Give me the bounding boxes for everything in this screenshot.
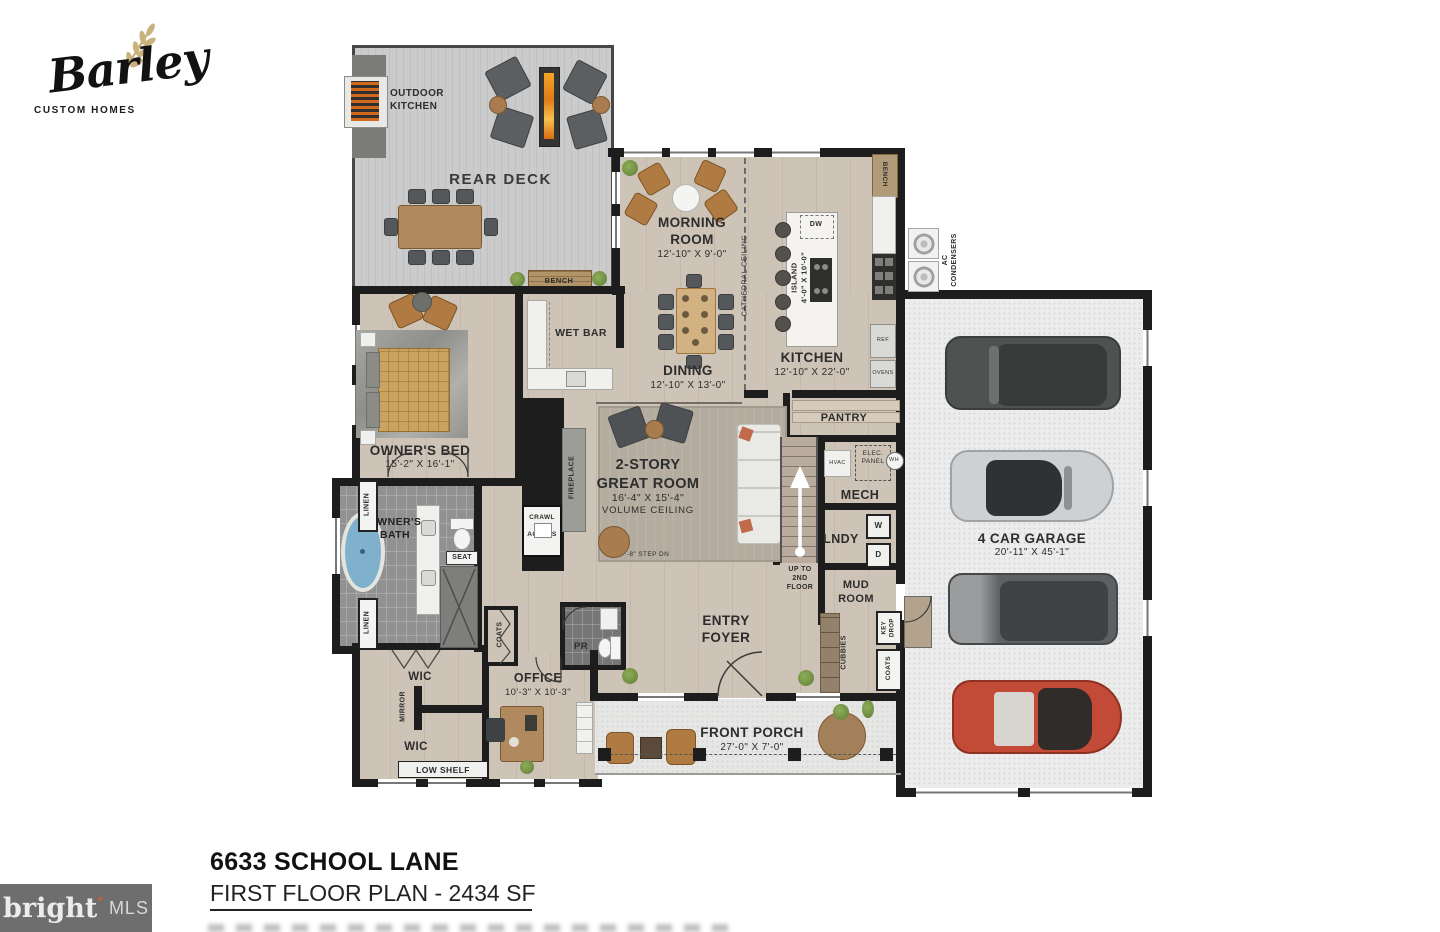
entry-foyer-label: ENTRY FOYER <box>676 612 776 647</box>
office-label: OFFICE <box>492 670 584 686</box>
rear-deck-label: REAR DECK <box>428 170 573 189</box>
window <box>612 216 620 248</box>
deck-dining-chair <box>484 218 498 236</box>
up-to-2nd-label: UP TO 2ND FLOOR <box>776 566 824 593</box>
porch-post <box>598 748 611 761</box>
bedroom-round-table <box>412 292 432 312</box>
bright-mls-watermark: bright ✶ MLS <box>0 884 152 932</box>
wall <box>352 779 490 787</box>
office-coats-label: COATS <box>497 614 506 654</box>
dining-chair <box>718 314 734 330</box>
dining-chair <box>658 294 674 310</box>
stairs <box>780 437 818 563</box>
island-stool <box>775 222 791 238</box>
floor-plan-canvas: Barley CUSTOM HOMES OUTDOOR KITCHEN REAR… <box>0 0 1440 932</box>
dining-chair <box>658 334 674 350</box>
pr-sink <box>600 608 618 630</box>
wall <box>896 290 905 797</box>
deck-dining-chair <box>432 250 450 265</box>
window <box>1143 470 1152 506</box>
morning-room-label: MORNING ROOM <box>642 214 742 249</box>
window <box>716 148 754 157</box>
bed <box>378 348 450 432</box>
barley-logo: Barley CUSTOM HOMES <box>30 12 230 127</box>
owners-bed-label: OWNER'S BED <box>350 442 490 459</box>
mud-room-label: MUD ROOM <box>816 578 896 606</box>
car-suv-dark <box>945 336 1121 410</box>
stone-pad-bottom <box>352 124 386 158</box>
nightstand <box>360 332 376 347</box>
plant <box>833 704 849 720</box>
porch-table <box>640 737 662 759</box>
island-stool <box>775 294 791 310</box>
kitchen-label: KITCHEN <box>757 349 867 366</box>
window <box>500 779 534 787</box>
hvac-label: HVAC <box>824 460 851 467</box>
morning-table <box>672 184 700 212</box>
kitchen-counter <box>872 196 896 254</box>
linen-label: LINEN <box>364 482 373 526</box>
cropped-text-strip <box>208 924 738 932</box>
washer-label: W <box>866 521 891 531</box>
window <box>1143 600 1152 636</box>
great-room-dims: 16'-4" X 15'-4" <box>578 492 718 505</box>
logo-brand: Barley <box>45 30 211 103</box>
wet-bar-label: WET BAR <box>545 327 617 340</box>
wet-bar-sink <box>566 371 586 387</box>
watermark-suffix: MLS <box>109 898 149 919</box>
wall <box>744 390 768 398</box>
wall <box>352 286 625 294</box>
great-room-side-table <box>645 420 664 439</box>
watermark-brand: bright <box>3 895 97 922</box>
wic1-label: WIC <box>380 670 460 685</box>
wall <box>352 645 360 787</box>
footer-underline <box>210 909 532 911</box>
wall <box>792 390 903 398</box>
garage-dims: 20'-11" X 45'-1" <box>962 547 1102 560</box>
office-dims: 10'-3" X 10'-3" <box>492 687 584 699</box>
deck-bench-label: BENCH <box>528 276 590 286</box>
window <box>545 779 579 787</box>
plant <box>622 160 638 176</box>
dryer-label: D <box>866 550 891 560</box>
deck-dining-chair <box>456 250 474 265</box>
garage-door <box>916 788 1018 797</box>
window <box>638 693 684 701</box>
window <box>428 779 466 787</box>
wic2-label: WIC <box>376 740 456 755</box>
dw-label: DW <box>800 221 832 230</box>
kitchen-dims: 12'-10" X 22'-0" <box>757 367 867 380</box>
office-bookcase <box>576 702 593 754</box>
ac-condenser <box>908 261 939 292</box>
porch-post <box>880 748 893 761</box>
toilet-bowl <box>453 528 471 550</box>
great-room-label: 2-STORY GREAT ROOM <box>578 456 718 493</box>
ac-condenser <box>908 228 939 259</box>
garage-stoop <box>904 596 932 648</box>
bed-pillows <box>366 352 380 388</box>
pr-toilet-tank <box>610 636 621 660</box>
dining-label: DINING <box>638 362 738 379</box>
pantry-shelf <box>792 400 900 411</box>
wall <box>818 503 903 510</box>
seat-label: SEAT <box>446 554 478 563</box>
deck-side-table <box>592 96 610 114</box>
footer-plan-title: FIRST FLOOR PLAN - 2434 SF <box>210 880 536 907</box>
island-stool <box>775 270 791 286</box>
cubbies-label: CUBBIES <box>841 624 850 680</box>
grill <box>344 76 388 128</box>
volume-ceiling-label: VOLUME CEILING <box>578 505 718 517</box>
low-shelf-label: LOW SHELF <box>398 765 488 776</box>
ovens-label: OVENS <box>870 370 896 377</box>
wall <box>616 290 624 348</box>
car-suv-gray <box>948 573 1118 645</box>
dining-chair <box>686 274 702 288</box>
dining-table <box>676 288 716 354</box>
range-cooktop <box>872 254 896 300</box>
plant <box>520 760 534 774</box>
dining-chair <box>718 294 734 310</box>
shower <box>440 566 478 648</box>
porch-edge-dashed <box>600 754 896 755</box>
office-chair <box>486 718 505 742</box>
garage-label: 4 CAR GARAGE <box>962 530 1102 547</box>
deck-side-table <box>489 96 507 114</box>
deck-dining-chair <box>384 218 398 236</box>
kitchen-bench-label: BENCH <box>880 154 888 194</box>
mud-cubbies <box>820 613 840 693</box>
mirror-label: MIRROR <box>400 684 409 728</box>
deck-dining-table <box>398 205 482 249</box>
porch-chair <box>666 729 696 765</box>
window <box>332 518 340 574</box>
porch-post <box>693 748 706 761</box>
window <box>612 172 620 204</box>
deck-dining-chair <box>408 189 426 204</box>
wh-label: WH <box>886 457 902 464</box>
window <box>624 148 662 157</box>
cathedral-ceiling-label: CATHEDRAL CEILING <box>742 220 751 330</box>
watermark-star-icon: ✶ <box>96 894 104 905</box>
window <box>796 693 840 701</box>
window <box>1143 330 1152 366</box>
garage-door <box>1030 788 1132 797</box>
pantry-label: PANTRY <box>798 411 890 425</box>
pr-label: PR <box>566 641 596 653</box>
logo-tagline: CUSTOM HOMES <box>34 105 136 116</box>
porch-bottom-edge <box>595 773 901 775</box>
plant <box>510 272 525 287</box>
morning-room-dims: 12'-10" X 9'-0" <box>642 249 742 262</box>
porch-post <box>788 748 801 761</box>
ac-condensers-label: AC CONDENSERS <box>942 217 960 303</box>
laundry-label: LNDY <box>810 531 872 547</box>
plant <box>862 700 874 718</box>
footer-address: 6633 SCHOOL LANE <box>210 848 459 877</box>
ref-label: REF <box>870 337 896 344</box>
mud-coats-label: COATS <box>885 648 893 688</box>
crawl-hatch <box>534 523 552 538</box>
fireplace-label: FIREPLACE <box>569 437 578 517</box>
island-cooktop <box>810 258 832 302</box>
wall <box>1143 290 1152 797</box>
deck-dining-chair <box>432 189 450 204</box>
office-desk <box>500 706 544 762</box>
dining-chair <box>718 334 734 350</box>
front-porch-label: FRONT PORCH <box>682 724 822 741</box>
dining-dims: 12'-10" X 13'-0" <box>638 380 738 393</box>
deck-dining-chair <box>408 250 426 265</box>
island-stool <box>775 246 791 262</box>
window <box>378 779 416 787</box>
plant <box>622 668 638 684</box>
island-label: ISLAND 4'-0" X 10'-0" <box>789 234 808 322</box>
car-sports-red <box>952 680 1122 754</box>
plant <box>592 271 607 286</box>
outdoor-kitchen-label: OUTDOOR KITCHEN <box>390 88 462 114</box>
dining-chair <box>658 314 674 330</box>
step-down-label: -8" STEP DN <box>608 551 688 559</box>
car-sports-silver <box>950 450 1114 522</box>
window <box>670 148 708 157</box>
fire-feature <box>539 67 560 147</box>
island-stool <box>775 316 791 332</box>
mech-label: MECH <box>820 487 900 503</box>
window <box>772 148 820 157</box>
key-drop-label: KEY DROP <box>881 613 896 643</box>
deck-dining-chair <box>456 189 474 204</box>
plant <box>798 670 814 686</box>
linen-label: LINEN <box>364 600 373 644</box>
bed-pillows <box>366 392 380 428</box>
owners-bed-dims: 15'-2" X 16'-1" <box>350 459 490 472</box>
wall <box>414 705 482 713</box>
